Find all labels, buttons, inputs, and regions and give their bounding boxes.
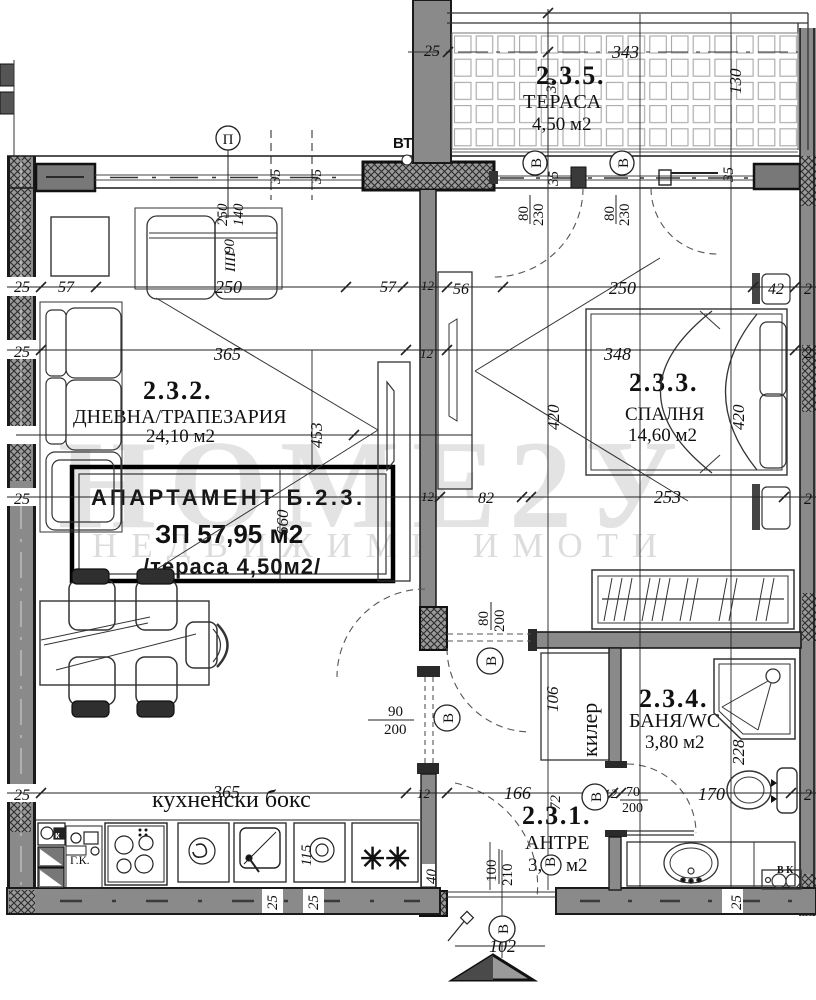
svg-text:4,50 м2: 4,50 м2	[532, 114, 592, 135]
svg-text:72: 72	[548, 795, 564, 811]
svg-text:200: 200	[622, 801, 643, 816]
svg-text:✳✳: ✳✳	[360, 843, 410, 876]
svg-text:25: 25	[265, 895, 281, 911]
svg-text:30: 30	[544, 78, 560, 95]
svg-text:к: к	[55, 830, 60, 840]
svg-text:420: 420	[544, 404, 563, 430]
svg-text:В: В	[496, 924, 512, 934]
svg-text:35: 35	[546, 171, 562, 188]
svg-text:12: 12	[420, 346, 434, 361]
svg-text:70: 70	[626, 785, 640, 800]
svg-text:230: 230	[617, 204, 633, 227]
svg-text:25: 25	[14, 787, 30, 804]
svg-text:365: 365	[213, 344, 241, 364]
svg-text:В: В	[441, 713, 457, 723]
svg-text:140: 140	[231, 203, 247, 226]
svg-text:ДНЕВНА/ТРАПЕЗАРИЯ: ДНЕВНА/ТРАПЕЗАРИЯ	[73, 406, 287, 428]
svg-text:90: 90	[388, 704, 403, 720]
svg-text:3,80 м2: 3,80 м2	[645, 732, 705, 753]
svg-text:35: 35	[721, 167, 737, 184]
svg-text:2: 2	[804, 345, 812, 362]
svg-text:365: 365	[212, 782, 240, 802]
svg-text:82: 82	[478, 490, 494, 507]
svg-text:2: 2	[804, 281, 812, 298]
svg-text:57: 57	[58, 279, 75, 296]
svg-text:250: 250	[609, 278, 636, 298]
svg-text:АНТРЕ: АНТРЕ	[525, 832, 589, 854]
svg-text:100: 100	[484, 860, 500, 883]
svg-text:250: 250	[215, 277, 242, 297]
svg-text:90: 90	[222, 239, 238, 255]
svg-text:12: 12	[417, 786, 431, 801]
svg-text:453: 453	[307, 423, 326, 449]
svg-text:200: 200	[492, 610, 508, 633]
svg-text:56: 56	[453, 281, 469, 298]
svg-text:П: П	[223, 132, 234, 148]
svg-text:115: 115	[299, 844, 315, 866]
svg-text:25: 25	[14, 491, 30, 508]
svg-text:200: 200	[384, 722, 407, 738]
svg-text:ВТ: ВТ	[393, 135, 412, 152]
svg-text:250: 250	[215, 203, 231, 226]
svg-text:В: В	[616, 158, 632, 168]
svg-text:14,60 м2: 14,60 м2	[628, 425, 697, 446]
svg-text:106: 106	[543, 686, 562, 712]
svg-text:2: 2	[804, 491, 812, 508]
svg-text:35: 35	[309, 169, 325, 186]
svg-text:В К: В К	[777, 865, 794, 876]
svg-text:166: 166	[504, 783, 531, 803]
svg-text:2: 2	[804, 787, 812, 804]
svg-text:80: 80	[476, 611, 492, 626]
svg-text:25: 25	[14, 344, 30, 361]
svg-text:170: 170	[698, 784, 725, 804]
svg-text:130: 130	[726, 68, 745, 94]
svg-text:12: 12	[421, 278, 435, 293]
svg-text:ТЕРАСА: ТЕРАСА	[523, 91, 602, 113]
svg-text:БАНЯ/WC: БАНЯ/WC	[629, 710, 720, 732]
svg-text:230: 230	[531, 204, 547, 227]
svg-text:420: 420	[729, 404, 748, 430]
svg-text:25: 25	[306, 895, 322, 911]
svg-text:228: 228	[729, 739, 748, 765]
svg-text:килер: килер	[577, 703, 602, 757]
svg-text:57: 57	[380, 279, 397, 296]
svg-text:В: В	[589, 792, 605, 802]
svg-text:IIII: IIII	[223, 251, 239, 273]
svg-text:2.3.4.: 2.3.4.	[639, 684, 708, 713]
svg-text:35: 35	[268, 169, 284, 186]
svg-text:660: 660	[273, 509, 292, 535]
svg-text:В: В	[529, 158, 545, 168]
svg-text:42: 42	[768, 281, 784, 298]
svg-text:25: 25	[729, 895, 745, 911]
svg-text:24,10 м2: 24,10 м2	[146, 426, 215, 447]
svg-text:2.3.2.: 2.3.2.	[143, 376, 212, 405]
svg-text:25: 25	[14, 279, 30, 296]
svg-text:В: В	[543, 857, 559, 867]
svg-text:210: 210	[500, 864, 516, 887]
svg-text:12: 12	[421, 489, 435, 504]
svg-text:253: 253	[654, 487, 681, 507]
svg-text:В: В	[484, 656, 500, 666]
svg-text:40: 40	[424, 869, 440, 885]
svg-text:348: 348	[603, 344, 631, 364]
